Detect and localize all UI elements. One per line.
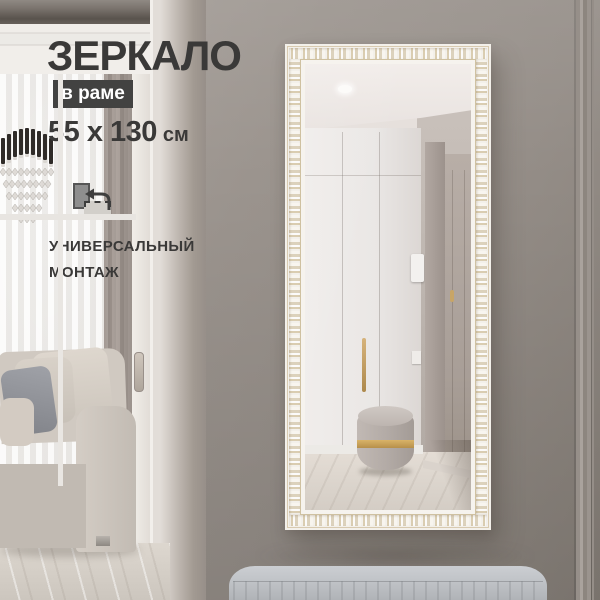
window-transom [0, 214, 136, 220]
mirror-glass [305, 64, 471, 510]
wall-molding [574, 0, 594, 600]
doorway-pillar [150, 0, 206, 600]
dimensions: 55 x 130 см [48, 116, 189, 149]
feature-line-1: УНИВЕРСАЛЬНЫЙ [49, 234, 195, 260]
chandelier [0, 126, 54, 226]
frame-ornament-top [289, 48, 487, 59]
dimensions-unit: см [163, 124, 189, 147]
sofa [0, 344, 136, 556]
window-mullion [58, 74, 63, 486]
dimensions-value: 55 x 130 [48, 116, 157, 149]
glass-sheen [305, 64, 471, 510]
sofa-cushion [0, 398, 34, 446]
product-title: ЗЕРКАЛО [47, 33, 241, 79]
frame-ornament-right [476, 59, 487, 515]
feature-line-2: МОНТАЖ [49, 260, 195, 286]
sofa-base [0, 464, 86, 548]
ornate-framed-mirror [285, 44, 491, 530]
feature-text: УНИВЕРСАЛЬНЫЙ МОНТАЖ [49, 234, 195, 286]
frame-ornament-left [289, 59, 300, 515]
product-photo: ЗЕРКАЛО в раме 55 x 130 см УНИВЕРСАЛЬНЫЙ… [0, 0, 600, 600]
frame-badge: в раме [53, 80, 133, 108]
sofa-leg [96, 536, 110, 546]
curtain-niche [0, 0, 152, 26]
frame-ornament-bottom [289, 515, 487, 526]
frame-badge-label: в раме [61, 83, 125, 105]
upholstered-bench [229, 566, 547, 600]
